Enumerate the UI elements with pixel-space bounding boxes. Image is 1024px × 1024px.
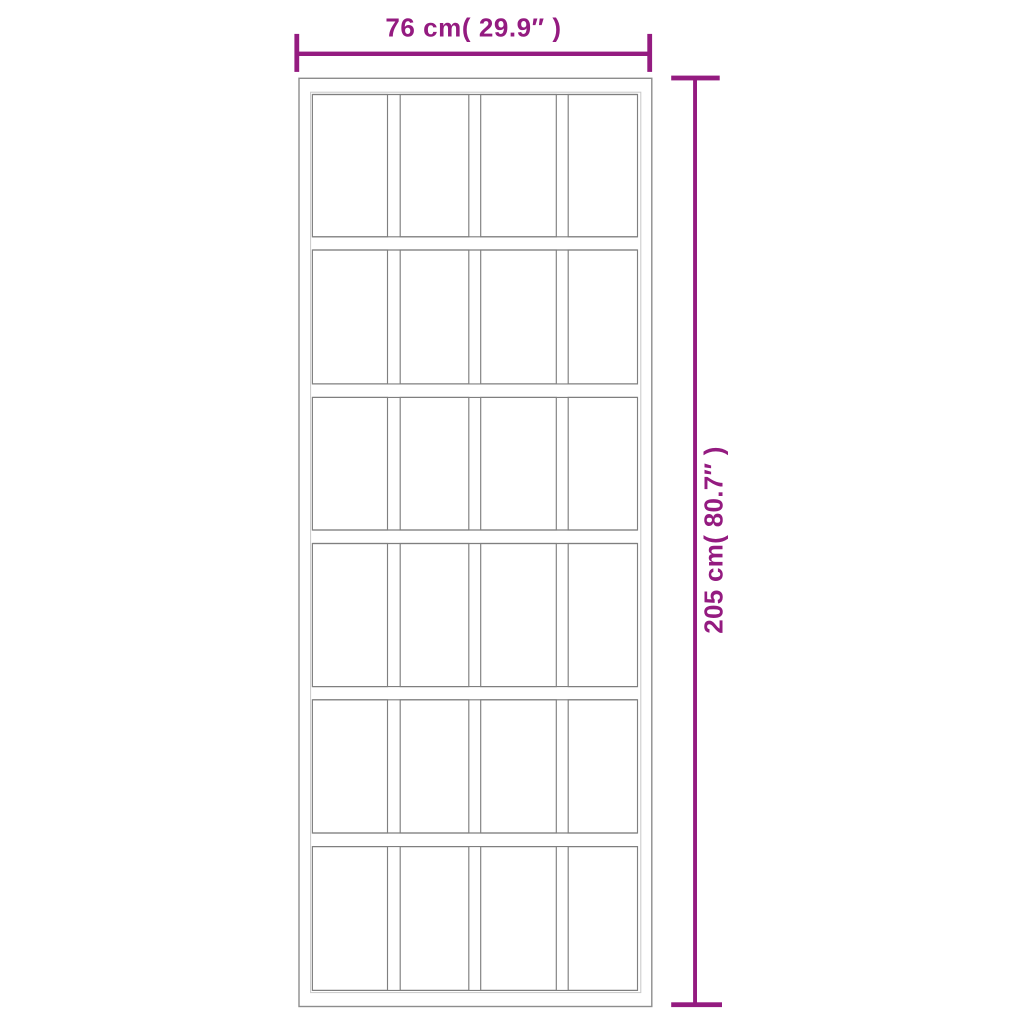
svg-text:205 cm( 80.7″ ): 205 cm( 80.7″ ) — [699, 446, 729, 634]
svg-text:76 cm( 29.9″ ): 76 cm( 29.9″ ) — [385, 13, 561, 43]
